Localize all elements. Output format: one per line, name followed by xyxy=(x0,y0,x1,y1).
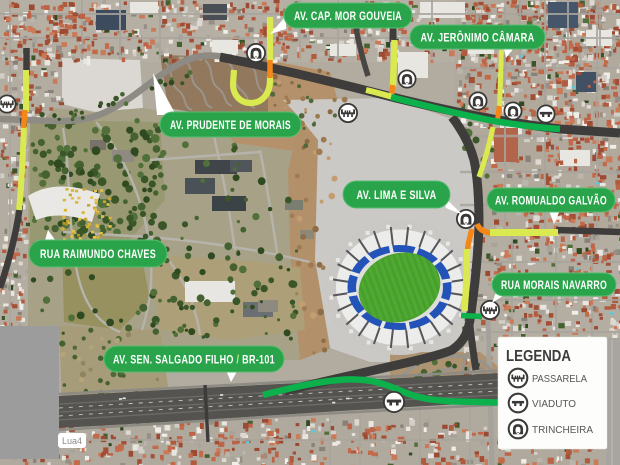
svg-text:Lua4: Lua4 xyxy=(62,436,82,446)
svg-text:TRINCHEIRA: TRINCHEIRA xyxy=(532,424,593,436)
svg-text:RUA MORAIS NAVARRO: RUA MORAIS NAVARRO xyxy=(501,278,607,292)
svg-text:AV. LIMA E SILVA: AV. LIMA E SILVA xyxy=(357,188,437,202)
svg-text:VIADUTO: VIADUTO xyxy=(532,398,576,410)
svg-text:AV. SEN. SALGADO FILHO / BR-10: AV. SEN. SALGADO FILHO / BR-101 xyxy=(113,352,275,366)
svg-text:PASSARELA: PASSARELA xyxy=(532,373,587,385)
svg-text:AV. CAP. MOR GOUVEIA: AV. CAP. MOR GOUVEIA xyxy=(294,9,402,23)
svg-text:AV. ROMUALDO GALVÃO: AV. ROMUALDO GALVÃO xyxy=(495,192,607,207)
svg-text:LEGENDA: LEGENDA xyxy=(506,348,571,365)
svg-text:AV. PRUDENTE DE MORAIS: AV. PRUDENTE DE MORAIS xyxy=(170,118,291,132)
svg-text:RUA RAIMUNDO CHAVES: RUA RAIMUNDO CHAVES xyxy=(40,247,156,261)
svg-text:AV. JERÔNIMO CÂMARA: AV. JERÔNIMO CÂMARA xyxy=(421,29,535,44)
